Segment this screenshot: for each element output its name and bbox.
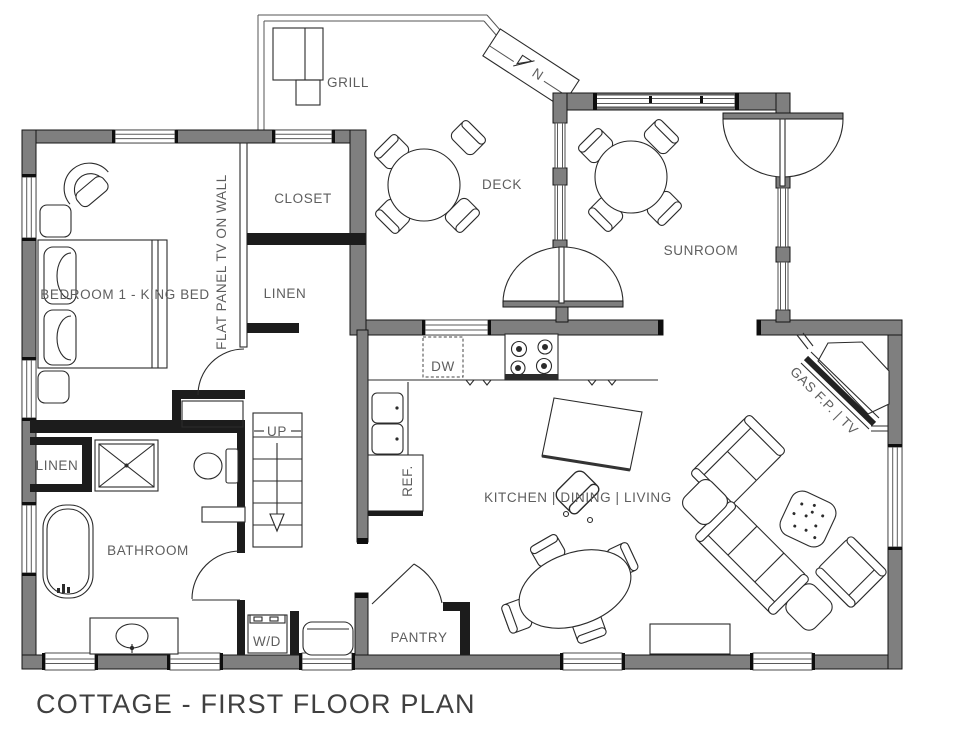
window xyxy=(42,653,98,670)
door-leaf xyxy=(559,247,564,303)
floor-plan-drawing: N xyxy=(0,0,960,754)
label-pantry: PANTRY xyxy=(390,630,447,645)
window xyxy=(22,357,36,421)
deck-table xyxy=(388,149,460,221)
bathtub xyxy=(43,505,93,598)
label-sunroom: SUNROOM xyxy=(664,243,739,258)
floor-plan-page: N xyxy=(0,0,960,754)
label-deck: DECK xyxy=(482,177,522,192)
nightstand xyxy=(38,371,69,403)
window xyxy=(422,320,491,335)
tv-wall xyxy=(240,143,247,347)
plan-title: COTTAGE - FIRST FLOOR PLAN xyxy=(36,689,476,719)
label-kitchen-dining-living: KITCHEN | DINING | LIVING xyxy=(484,490,672,505)
dining-set xyxy=(501,533,730,654)
label-closet: CLOSET xyxy=(274,191,332,206)
label-dishwasher: DW xyxy=(431,359,455,374)
window xyxy=(555,185,565,240)
label-bathroom: BATHROOM xyxy=(107,543,189,558)
bathroom-door-swing xyxy=(192,551,240,599)
window xyxy=(778,188,788,247)
window xyxy=(22,174,36,241)
grill xyxy=(273,28,323,105)
sunroom-table xyxy=(595,141,667,213)
window xyxy=(750,653,815,670)
label-linen-hall: LINEN xyxy=(264,286,307,301)
window xyxy=(888,444,902,550)
window xyxy=(112,130,178,143)
label-bedroom: BEDROOM 1 - KING BED xyxy=(40,287,210,302)
bath-shelf xyxy=(202,507,245,522)
window xyxy=(778,262,788,310)
window xyxy=(560,653,625,670)
window xyxy=(555,123,565,168)
window xyxy=(272,130,335,143)
window-bench xyxy=(303,622,353,655)
sunroom-table-set xyxy=(577,118,683,233)
toilet-tank xyxy=(226,449,238,483)
label-wd: W/D xyxy=(253,634,281,649)
label-linen-bath: LINEN xyxy=(36,458,79,473)
bedroom-furniture xyxy=(38,153,167,403)
nightstand xyxy=(40,205,71,237)
bedroom-door-swing xyxy=(198,349,244,395)
deck-table-set xyxy=(373,119,487,235)
label-up: UP xyxy=(267,424,287,439)
label-tv-wall: FLAT PANEL TV ON WALL xyxy=(214,174,229,350)
window xyxy=(22,502,36,576)
window xyxy=(593,93,739,110)
label-grill: GRILL xyxy=(327,75,369,90)
living-room-furniture xyxy=(679,414,888,634)
window xyxy=(167,653,223,670)
label-refrigerator: REF. xyxy=(400,465,415,497)
ottoman xyxy=(776,487,840,551)
door-threshold xyxy=(723,113,843,119)
pantry-door-leaf xyxy=(372,564,414,604)
deck-chair xyxy=(449,119,487,157)
pillow xyxy=(44,310,76,365)
console xyxy=(650,624,730,654)
door-leaf xyxy=(780,119,785,186)
toilet xyxy=(194,453,222,479)
pantry-door-swing xyxy=(414,564,442,603)
